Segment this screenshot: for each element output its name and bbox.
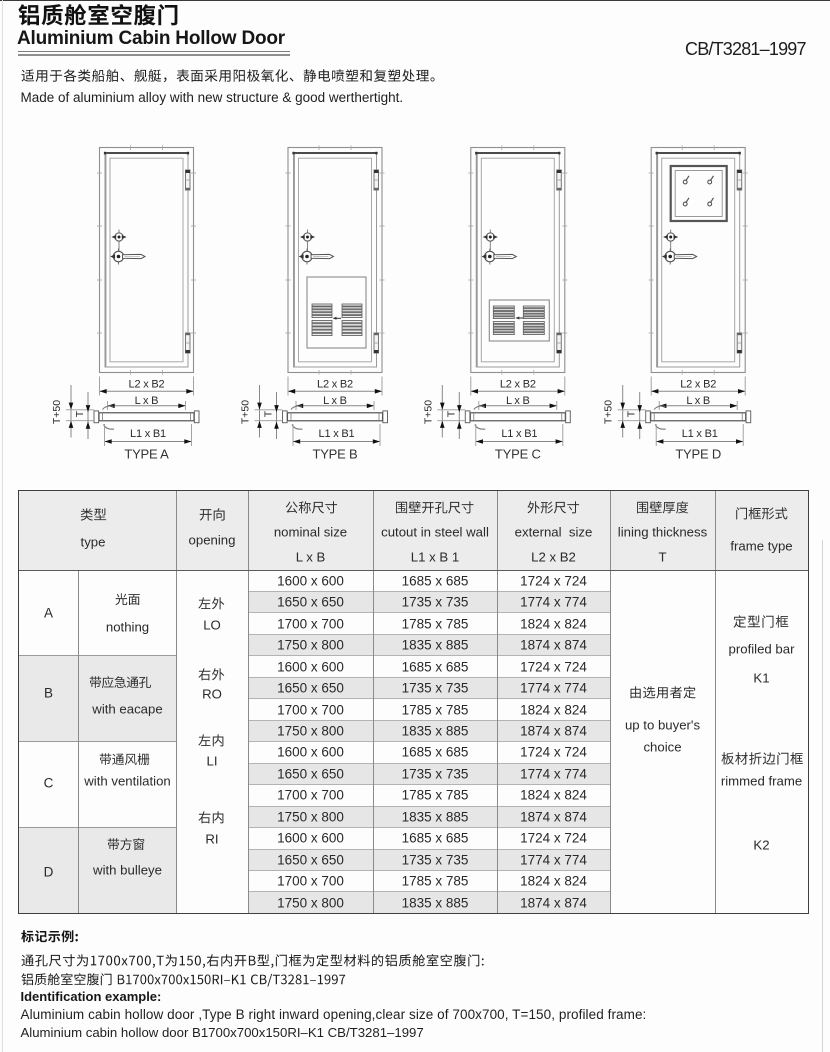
- svg-text:TYPE B: TYPE B: [312, 446, 357, 461]
- svg-text:L1 x B1: L1 x B1: [130, 428, 166, 440]
- svg-text:L1 x B1: L1 x B1: [682, 428, 718, 440]
- svg-text:T+50: T+50: [422, 400, 434, 424]
- svg-text:TYPE C: TYPE C: [495, 446, 541, 461]
- svg-text:L2 x B2: L2 x B2: [317, 378, 353, 390]
- svg-text:T: T: [626, 410, 638, 417]
- svg-text:T+50: T+50: [603, 400, 615, 424]
- svg-text:T: T: [263, 410, 275, 417]
- svg-text:T: T: [74, 410, 86, 417]
- svg-text:L1 x B1: L1 x B1: [501, 428, 537, 440]
- svg-text:L2 x B2: L2 x B2: [129, 378, 165, 390]
- svg-text:L x B: L x B: [686, 395, 710, 407]
- svg-text:T: T: [445, 410, 457, 417]
- svg-text:L1 x B1: L1 x B1: [319, 428, 355, 440]
- svg-text:T+50: T+50: [51, 400, 63, 424]
- svg-text:T+50: T+50: [240, 400, 252, 424]
- svg-text:L2 x B2: L2 x B2: [680, 378, 716, 390]
- svg-text:L x B: L x B: [135, 395, 159, 407]
- svg-text:L2 x B2: L2 x B2: [500, 378, 536, 390]
- svg-text:TYPE A: TYPE A: [124, 446, 169, 461]
- svg-text:TYPE D: TYPE D: [675, 446, 721, 461]
- svg-text:L x B: L x B: [506, 395, 530, 407]
- svg-text:L x B: L x B: [323, 395, 347, 407]
